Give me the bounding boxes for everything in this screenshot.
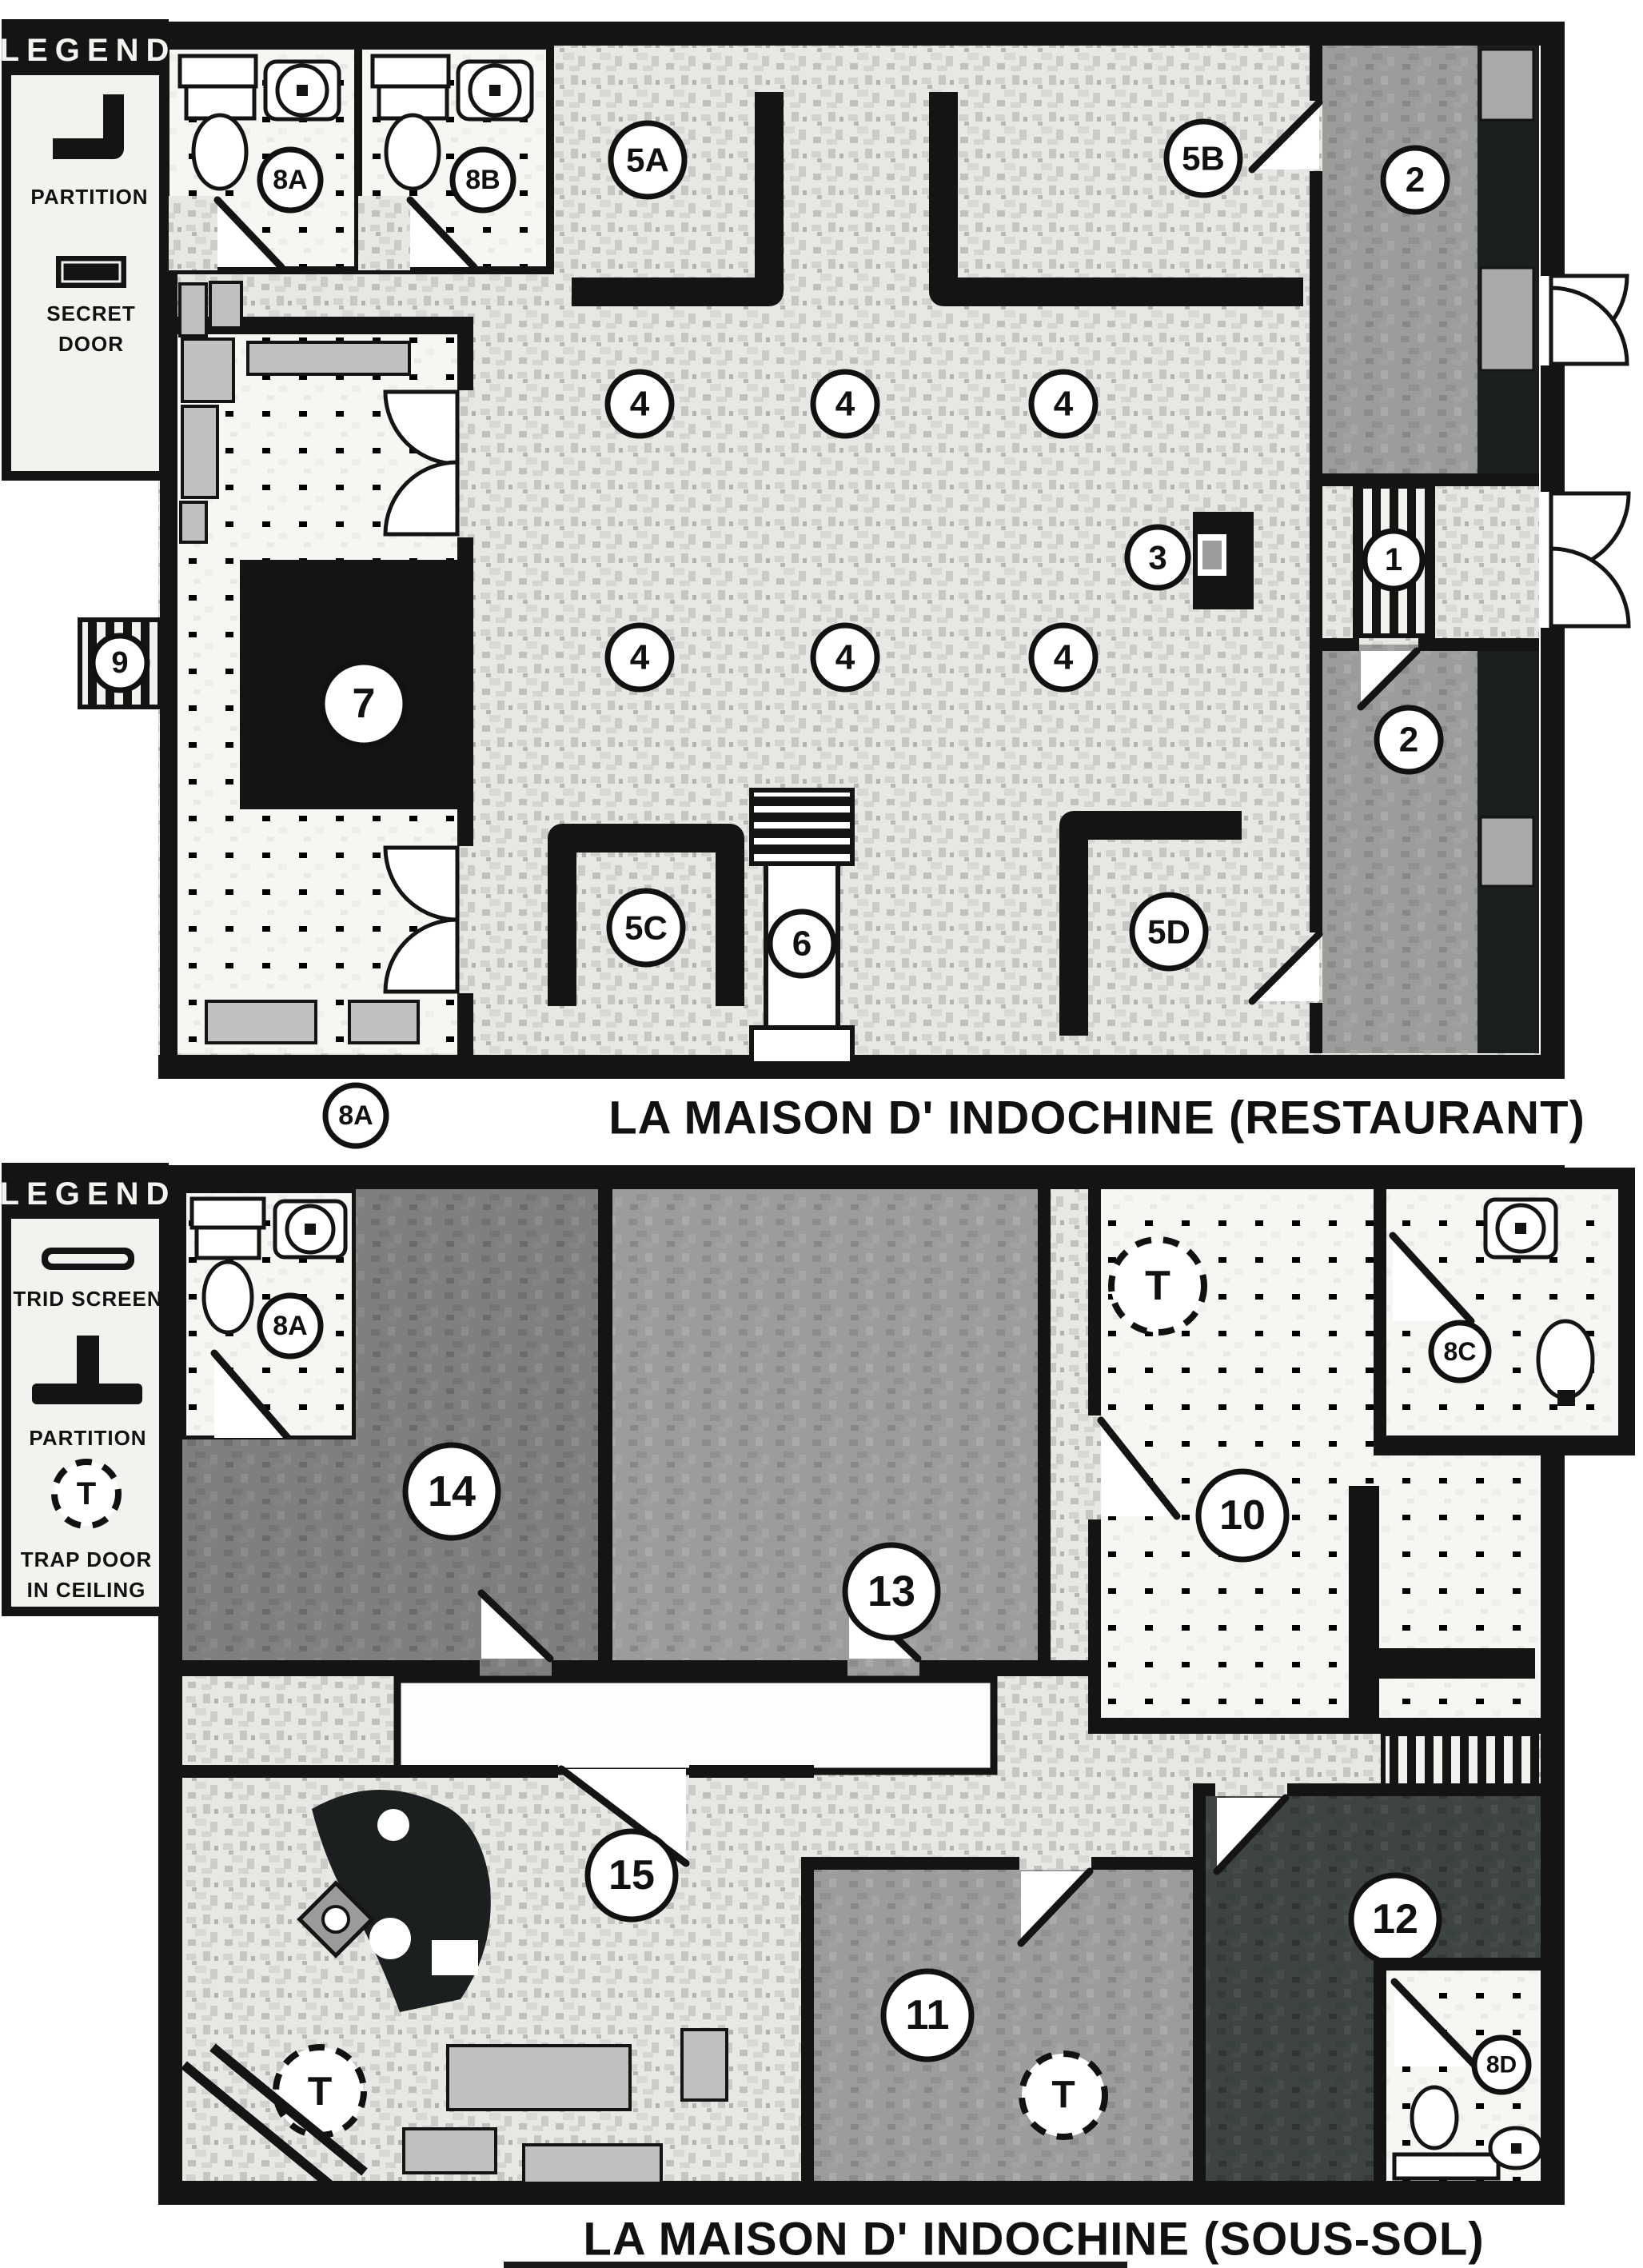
room-label-5b: 5B [1166,122,1240,195]
counter-icon [192,1199,264,1228]
counter-icon [248,342,409,374]
chair-seat-icon [323,1907,349,1932]
corridor-west-wall [1310,1003,1322,1053]
door-swing-icon [1551,549,1629,626]
kitchen-east-wall-a [457,317,473,390]
secret-door-icon [56,256,126,288]
trap-door-marker-10: T [1111,1240,1204,1332]
wall-corridor-15 [182,1765,558,1778]
wall-13-corridor-south [552,1660,847,1676]
partition-icon [77,1336,99,1388]
counter-icon [1394,2154,1498,2178]
room-label-13: 13 [845,1545,938,1638]
corridor-west-wall [1310,171,1322,932]
toilet-icon [1538,1321,1593,1398]
crate-icon [682,2030,727,2100]
corridor-2-top-floor [1322,46,1478,480]
legend-trap-symbol: T [77,1476,96,1511]
table-label: 4 [835,385,855,424]
legend-secret-door-label-1: SECRET [46,301,135,325]
stage-6: 6 [752,790,852,1064]
legend-box [6,24,164,476]
door-threshold [165,196,217,270]
sink-drain-icon [1515,1223,1526,1234]
wall-14-corridor [182,1660,480,1676]
door-threshold [358,196,410,270]
step-icon [180,284,206,336]
counter-icon [182,339,233,401]
room-label-2-top-text: 2 [1406,161,1425,200]
toilet-icon [1412,2087,1457,2148]
crate-icon [448,2046,630,2110]
table-4-1: 4 [608,372,672,436]
room-label-11-text: 11 [906,1992,950,2038]
room-label-2-top: 2 [1383,148,1447,212]
kitchen-east-wall-c [457,993,473,1055]
closet-shelf-icon [1481,50,1533,120]
wall-13-corridor [1038,1189,1051,1676]
room-label-10: 10 [1198,1471,1286,1559]
south-wall [158,1055,1554,1079]
desk-hole-icon [377,1809,409,1841]
legend-sous-sol: LEGEND TRID SCREEN PARTITION T TRAP DOOR… [0,1168,176,1611]
bath-8d-north-wall [1374,1958,1541,1971]
legend-header: LEGEND [0,1176,176,1212]
legend-partition-label: PARTITION [30,185,148,209]
vestibule-south-wall [1418,638,1539,651]
room-label-12-text: 12 [1372,1896,1418,1943]
corridor-strip [1051,1189,1088,1676]
sink-drain-icon [489,85,500,96]
partition-icon [32,1384,142,1404]
room-label-10-text: 10 [1219,1492,1266,1539]
vestibule-south-wall [1310,638,1359,651]
room-label-8d-text: 8D [1486,2052,1517,2078]
bathroom-8b: 8B [358,46,550,270]
wall-13-corridor-south [919,1660,1094,1676]
room-label-8a-basement-text: 8A [273,1311,307,1341]
staircase-icon [1383,1734,1537,1790]
room-label-7-text: 7 [353,681,376,727]
trid-screen-icon-inner [48,1254,128,1264]
room-label-8a-basement-label: 8A [260,1296,321,1356]
table-label: 4 [630,385,650,424]
room-label-8a-text: 8A [273,165,307,195]
counter-icon [181,502,206,542]
table-4-4: 4 [608,625,672,689]
wall-14-13 [598,1189,612,1676]
crate-icon [524,2145,661,2183]
trap-door-10-text: T [1145,1263,1170,1309]
room-label-8a: 8A [260,150,321,210]
sink-drain-icon [305,1224,316,1235]
exit-alcove [1481,268,1533,370]
stage-base [752,1028,852,1064]
table-4-6: 4 [1031,625,1095,689]
legend-partition-label: PARTITION [29,1426,146,1450]
counter-icon [180,56,256,86]
stairs-label-8a: 8A [325,1085,386,1146]
corridor-2-bottom-floor [1322,645,1478,1053]
room-label-8b-text: 8B [465,165,500,195]
room-label-13-text: 13 [867,1567,915,1615]
room-label-2-bottom-text: 2 [1399,721,1418,760]
counter-icon [182,406,217,497]
page-edge-strip [504,2262,1127,2268]
table-4-5: 4 [813,625,877,689]
bath-8c-west-wall [1374,1189,1386,1435]
room-label-5a: 5A [611,123,684,197]
room-label-5d: 5D [1132,895,1206,968]
kitchen: 7 [160,317,473,1055]
host-stand-shelf [1202,541,1222,569]
closet-shelf-icon [1481,817,1533,886]
trap-door-15-text: T [308,2069,333,2114]
room-11-floor [814,1870,1193,2181]
desk-hole-icon [369,1918,411,1959]
room-label-14: 14 [405,1445,498,1538]
wall-corridor-10 [1088,1189,1101,1416]
room-label-2-bottom: 2 [1377,708,1441,772]
bathroom-8d: 8D [1374,1958,1541,2181]
wall-corridor-15 [689,1765,814,1778]
floorplan-document: 7 8A [0,0,1643,2268]
room-label-1-text: 1 [1385,542,1402,577]
room-label-6-text: 6 [792,924,812,964]
table-4-2: 4 [813,372,877,436]
toilet-icon [204,1262,252,1332]
room-label-7: 7 [322,662,405,745]
room-13 [612,1189,1038,1676]
toilet-seat-icon [1557,1390,1575,1406]
step-icon [210,282,241,328]
bath-8d-west-wall [1374,1958,1386,2181]
restaurant-plan: 7 8A [0,24,1629,1146]
room-label-15-text: 15 [608,1852,655,1899]
room-11-west-wall [801,1857,814,2181]
legend-trid-label: TRID SCREEN [13,1287,162,1311]
legend-restaurant: LEGEND PARTITION SECRET DOOR [0,24,176,476]
room-label-14-text: 14 [428,1467,476,1515]
floorplan-page: 7 8A [0,0,1643,2268]
room-label-8b: 8B [453,150,513,210]
room-12-west-wall [1193,1783,1206,2181]
crate-icon [404,2129,496,2173]
table-label: 4 [1054,385,1074,424]
room-label-5c: 5C [609,891,683,964]
table-label: 4 [835,638,855,677]
legend-trap-label-1: TRAP DOOR [21,1547,153,1571]
bath-8c-south-wall [1374,1435,1635,1455]
sous-sol-plan: 8A 14 13 T [0,1168,1635,2268]
counter-icon [349,1001,418,1043]
stairs-label-8a-text: 8A [338,1100,373,1131]
room-label-5d-text: 5D [1147,913,1190,951]
trap-door-11-text: T [1051,2074,1075,2117]
room-11: 11 T [801,1857,1193,2181]
bathroom-8a-basement: 8A [182,1189,356,1439]
room-label-3-text: 3 [1148,539,1166,577]
room-11-north-wall [1091,1857,1193,1870]
corridor-west-wall [1310,46,1322,101]
toilet-icon [386,115,439,189]
room-label-5c-text: 5C [624,909,668,947]
restaurant-title: LA MAISON D' INDOCHINE (RESTAURANT) [608,1092,1585,1144]
room-label-8c-text: 8C [1444,1337,1477,1366]
service-hatch-9: 9 [80,620,160,707]
toilet-icon [193,115,246,189]
trid-screen-icon [397,1679,994,1771]
wall-corridor-10 [1088,1519,1101,1734]
toilet-tank-icon [197,1228,259,1258]
room-label-5b-text: 5B [1182,140,1225,178]
room-12-north-wall [1287,1783,1541,1796]
room-label-5a-text: 5A [626,142,669,179]
vestibule-1: 1 [1355,486,1433,636]
sous-sol-title: LA MAISON D' INDOCHINE (SOUS-SOL) [583,2214,1484,2266]
table-label: 4 [1054,638,1074,677]
table-4-3: 4 [1031,372,1095,436]
legend-header: LEGEND [0,33,176,68]
room-11-north-wall [801,1857,1019,1870]
counter-icon [373,56,449,86]
bathroom-8a: 8A [165,46,358,270]
desk-slot-icon [432,1940,478,1975]
sink-drain-icon [1511,2143,1521,2154]
sink-drain-icon [297,85,308,96]
legend-secret-door-label-2: DOOR [58,332,124,356]
bathroom-8c: 8C [1374,1189,1635,1455]
counter-icon [206,1001,316,1043]
legend-trap-label-2: IN CEILING [27,1578,146,1602]
table-label: 4 [630,638,650,677]
room-label-9-text: 9 [111,646,128,680]
